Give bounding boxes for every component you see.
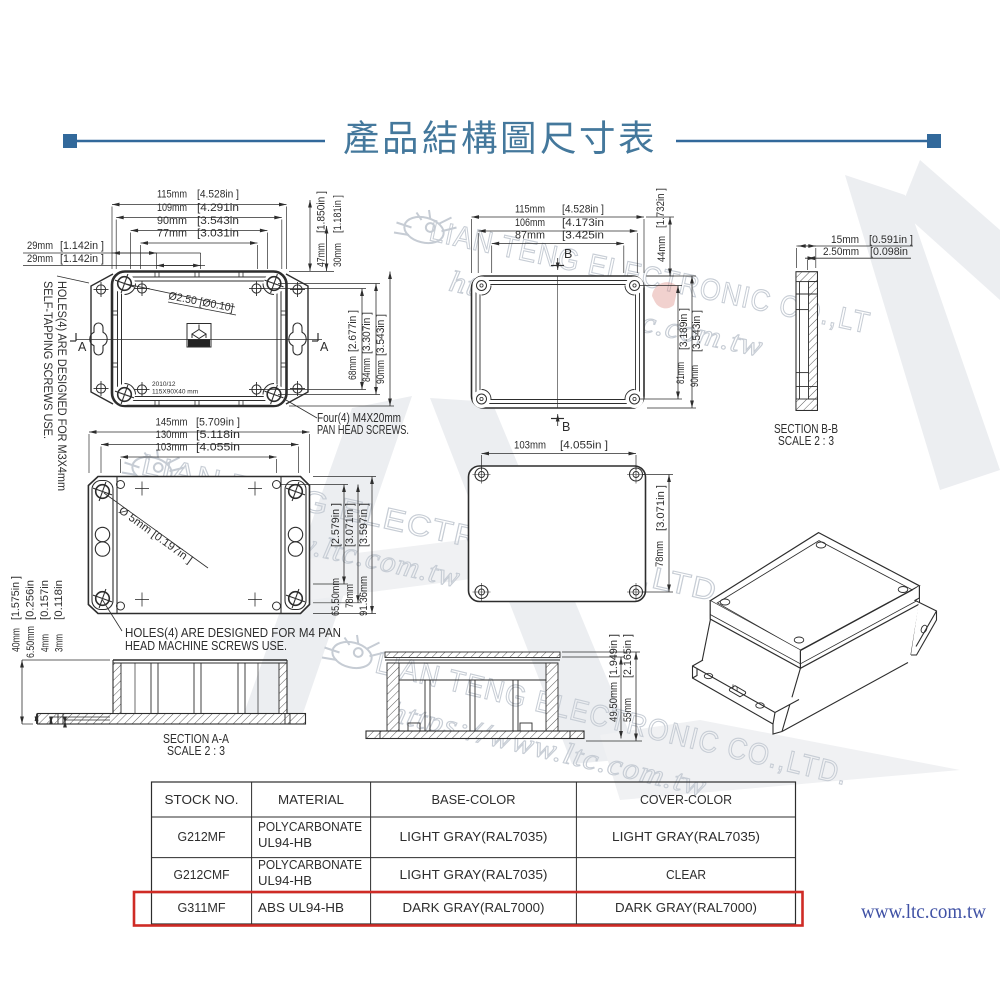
svg-text:30mm: 30mm <box>332 243 344 267</box>
svg-text:[3.071in ]: [3.071in ] <box>655 485 667 531</box>
svg-text:COVER-COLOR: COVER-COLOR <box>640 792 732 807</box>
svg-text:[2.677in ]: [2.677in ] <box>347 310 359 352</box>
svg-text:www.ltc.com.tw: www.ltc.com.tw <box>861 901 987 923</box>
svg-text:SELF-TAPPING SCREWS USE.: SELF-TAPPING SCREWS USE. <box>41 281 55 439</box>
svg-text:[1.575in ]: [1.575in ] <box>10 576 22 620</box>
svg-text:6.50mm: 6.50mm <box>25 626 37 658</box>
svg-text:[0.157in: [0.157in <box>39 580 51 620</box>
svg-text:130mm: 130mm <box>156 429 188 441</box>
svg-text:UL94-HB: UL94-HB <box>258 835 312 850</box>
svg-text:[1.949in ]: [1.949in ] <box>608 634 620 678</box>
svg-text:[0.256in: [0.256in <box>25 580 37 620</box>
svg-text:[2.165in ]: [2.165in ] <box>622 634 634 678</box>
svg-text:B: B <box>564 247 572 261</box>
svg-text:[4.528in ]: [4.528in ] <box>562 204 604 216</box>
svg-text:MATERIAL: MATERIAL <box>278 792 344 807</box>
svg-text:29mm: 29mm <box>27 253 53 265</box>
svg-text:106mm: 106mm <box>515 217 545 229</box>
svg-text:G311MF: G311MF <box>178 900 226 915</box>
svg-text:ABS UL94-HB: ABS UL94-HB <box>258 900 344 915</box>
svg-text:[1.142in ]: [1.142in ] <box>60 240 104 252</box>
svg-text:145mm: 145mm <box>156 417 188 429</box>
svg-text:[1.850in ]: [1.850in ] <box>316 191 328 233</box>
svg-text:84mm: 84mm <box>361 358 373 382</box>
svg-text:LIGHT GRAY(RAL7035): LIGHT GRAY(RAL7035) <box>612 829 760 844</box>
svg-text:STOCK NO.: STOCK NO. <box>165 792 239 807</box>
svg-text:CLEAR: CLEAR <box>666 867 706 882</box>
svg-text:[5.118in: [5.118in <box>196 429 240 441</box>
svg-text:115mm: 115mm <box>515 204 545 216</box>
svg-text:29mm: 29mm <box>27 240 53 252</box>
svg-text:DARK GRAY(RAL7000): DARK GRAY(RAL7000) <box>615 900 757 915</box>
svg-text:68mm: 68mm <box>347 356 359 380</box>
svg-text:DARK GRAY(RAL7000): DARK GRAY(RAL7000) <box>403 900 545 915</box>
svg-text:4mm: 4mm <box>40 634 52 652</box>
svg-text:87mm: 87mm <box>515 230 545 242</box>
svg-text:90mm: 90mm <box>157 215 187 227</box>
svg-text:[4.528in ]: [4.528in ] <box>197 189 239 201</box>
svg-text:[2.579in ]: [2.579in ] <box>330 503 342 547</box>
svg-text:78mm: 78mm <box>654 541 666 567</box>
svg-text:40mm: 40mm <box>11 628 23 652</box>
svg-text:47mm: 47mm <box>316 243 328 267</box>
svg-text:2.50mm: 2.50mm <box>823 246 859 258</box>
svg-text:PAN HEAD SCREWS.: PAN HEAD SCREWS. <box>317 423 409 437</box>
svg-text:[0.118in: [0.118in <box>53 580 65 620</box>
svg-text:SCALE 2 : 3: SCALE 2 : 3 <box>778 434 834 448</box>
svg-text:[3.597in ]: [3.597in ] <box>358 503 370 547</box>
svg-text:[1.732in ]: [1.732in ] <box>655 188 667 228</box>
svg-text:3mm: 3mm <box>54 634 66 652</box>
svg-text:109mm: 109mm <box>157 202 187 214</box>
svg-text:HOLES(4) ARE DESIGNED FOR M3X4: HOLES(4) ARE DESIGNED FOR M3X4mm <box>55 281 69 491</box>
svg-text:POLYCARBONATE: POLYCARBONATE <box>258 857 362 872</box>
svg-text:G212CMF: G212CMF <box>174 867 230 882</box>
svg-text:81mm: 81mm <box>675 362 687 384</box>
svg-text:[3.307in ]: [3.307in ] <box>361 312 373 354</box>
svg-text:90mm: 90mm <box>689 365 701 387</box>
svg-text:SCALE 2 : 3: SCALE 2 : 3 <box>167 744 225 758</box>
svg-text:2010/12: 2010/12 <box>152 381 176 388</box>
svg-text:B: B <box>562 420 570 434</box>
svg-text:91.36mm: 91.36mm <box>358 576 370 616</box>
svg-text:[3.071in ]: [3.071in ] <box>344 503 356 547</box>
svg-text:G212MF: G212MF <box>178 829 226 844</box>
svg-text:[3.425in: [3.425in <box>562 230 604 242</box>
svg-text:A: A <box>320 340 329 354</box>
svg-text:77mm: 77mm <box>157 228 187 240</box>
svg-text:[4.055in: [4.055in <box>196 442 240 454</box>
svg-text:HEAD MACHINE SCREWS USE.: HEAD MACHINE SCREWS USE. <box>125 639 287 653</box>
svg-text:49.50mm: 49.50mm <box>608 682 620 722</box>
svg-text:[3.189in ]: [3.189in ] <box>678 308 690 350</box>
svg-text:A: A <box>78 340 87 354</box>
svg-text:[1.181in ]: [1.181in ] <box>332 195 344 233</box>
svg-text:UL94-HB: UL94-HB <box>258 873 312 888</box>
svg-text:[4.291in: [4.291in <box>197 202 239 214</box>
svg-text:[4.055in ]: [4.055in ] <box>560 440 608 452</box>
svg-text:44mm: 44mm <box>656 236 668 262</box>
svg-text:103mm: 103mm <box>156 442 188 454</box>
svg-text:[3.031in: [3.031in <box>197 228 239 240</box>
svg-text:BASE-COLOR: BASE-COLOR <box>432 792 516 807</box>
svg-text:55mm: 55mm <box>622 698 634 722</box>
svg-text:[0.098in: [0.098in <box>870 246 908 258</box>
svg-text:90mm: 90mm <box>375 360 387 384</box>
svg-text:[0.591in ]: [0.591in ] <box>869 234 913 246</box>
svg-text:103mm: 103mm <box>514 440 546 452</box>
svg-text:POLYCARBONATE: POLYCARBONATE <box>258 819 362 834</box>
svg-text:78mm: 78mm <box>344 584 356 608</box>
svg-text:[3.543in: [3.543in <box>197 215 239 227</box>
svg-text:LIGHT GRAY(RAL7035): LIGHT GRAY(RAL7035) <box>400 867 548 882</box>
svg-text:15mm: 15mm <box>831 234 859 246</box>
svg-text:LIGHT GRAY(RAL7035): LIGHT GRAY(RAL7035) <box>400 829 548 844</box>
svg-text:[5.709in ]: [5.709in ] <box>196 417 240 429</box>
svg-text:[3.543in ]: [3.543in ] <box>691 310 703 352</box>
svg-text:115mm: 115mm <box>157 189 187 201</box>
svg-text:[4.173in: [4.173in <box>562 217 604 229</box>
svg-text:HOLES(4) ARE DESIGNED FOR M4 P: HOLES(4) ARE DESIGNED FOR M4 PAN <box>125 626 341 640</box>
svg-text:115X90X40 mm: 115X90X40 mm <box>152 389 198 396</box>
svg-text:[1.142in ]: [1.142in ] <box>60 253 104 265</box>
svg-text:[3.543in ]: [3.543in ] <box>375 314 387 356</box>
